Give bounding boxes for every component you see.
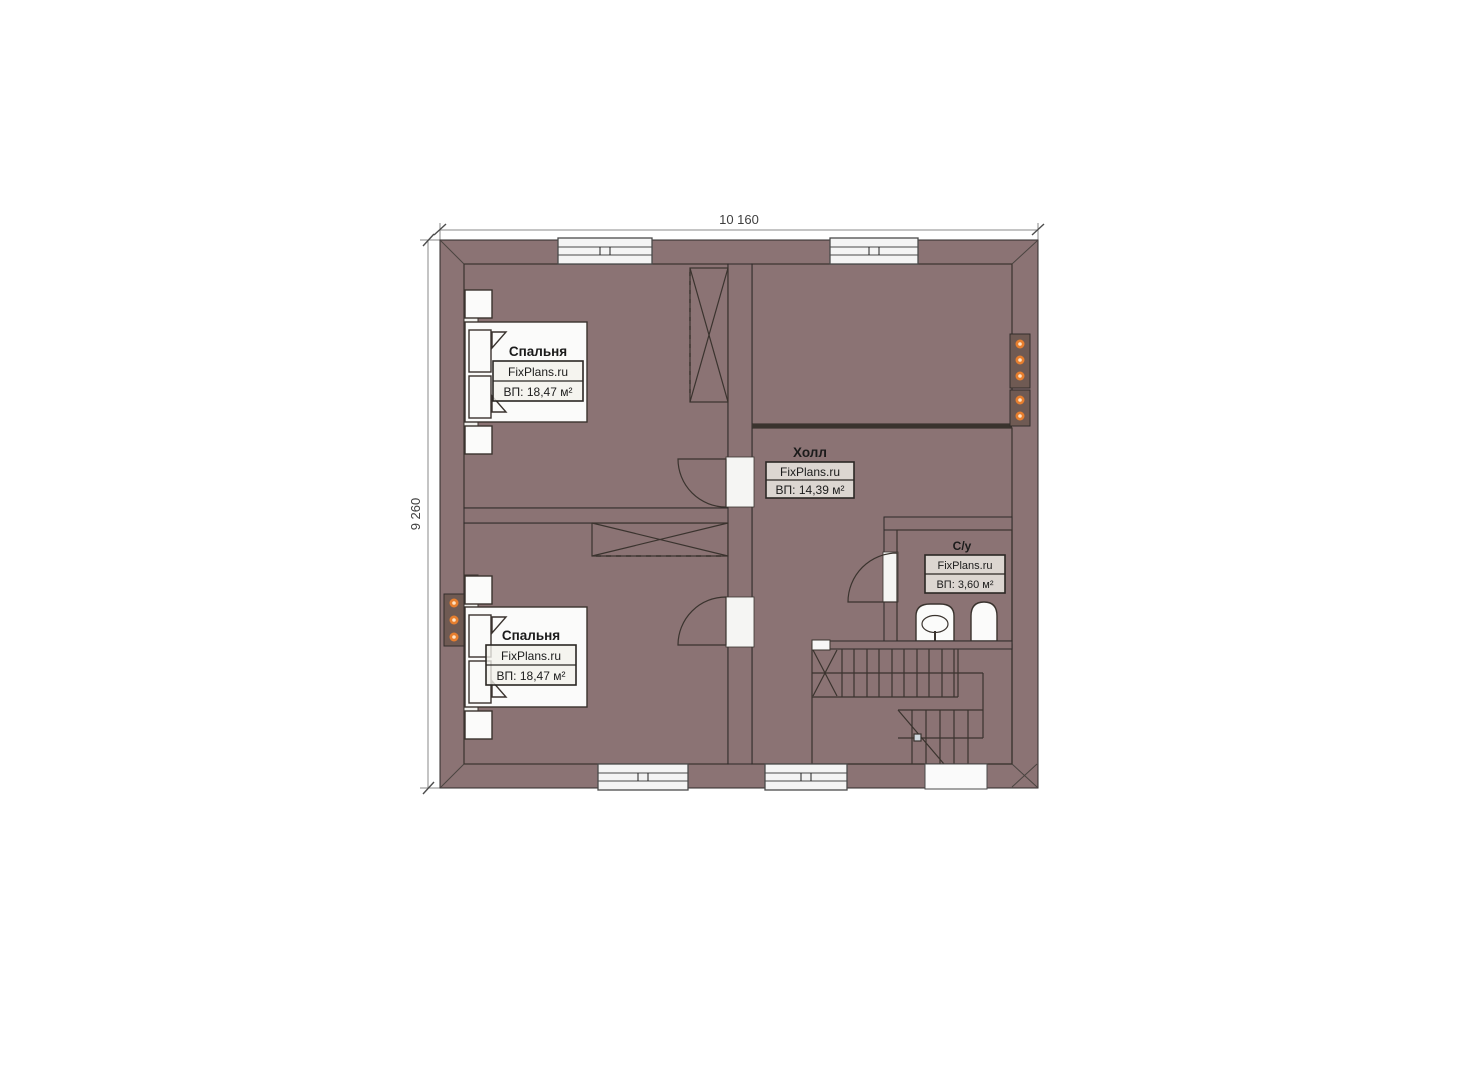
room-brand: FixPlans.ru [508,365,568,379]
room-title: Спальня [502,628,560,643]
room-area: ВП: 14,39 м² [776,483,845,497]
wall-between-bedrooms [464,508,728,523]
dimension-height-label: 9 260 [408,498,423,531]
room-area: ВП: 18,47 м² [497,669,566,683]
room-area: ВП: 3,60 м² [936,579,993,591]
nightstand [465,426,492,454]
room-brand: FixPlans.ru [780,465,840,479]
floor-plan: 10 160 9 260 [0,0,1473,1080]
window-bottom-stairs [925,764,987,789]
sink [916,604,954,641]
dimension-left: 9 260 [408,234,441,794]
pillow [469,330,491,372]
room-brand: FixPlans.ru [501,649,561,663]
stairs-wall-top [830,641,1012,649]
radiator-left [444,594,464,646]
room-title: Холл [793,445,827,460]
dimension-top: 10 160 [434,212,1044,241]
window-top-1 [558,238,652,264]
door-opening [726,597,754,647]
bathroom-wall-top [884,517,1012,530]
wall-vertical-center [728,264,752,764]
radiator-right-1 [1010,334,1030,388]
stairs-newel [812,640,830,650]
nightstand [465,711,492,739]
stairs-node [914,734,921,741]
pillow [469,376,491,418]
nightstand [465,576,492,604]
room-brand: FixPlans.ru [937,560,992,572]
nightstand [465,290,492,318]
toilet [971,602,997,641]
window-bottom-1 [598,764,688,790]
bathroom-door-opening [883,552,898,602]
partition-hall-top [752,424,1012,428]
room-title: С/у [953,539,972,553]
room-area: ВП: 18,47 м² [504,385,573,399]
dimension-width-label: 10 160 [719,212,759,227]
floor-plan-page: 10 160 9 260 [0,0,1473,1080]
window-top-2 [830,238,918,264]
room-title: Спальня [509,344,567,359]
window-bottom-2 [765,764,847,790]
door-opening [726,457,754,507]
radiator-right-2 [1010,390,1030,426]
